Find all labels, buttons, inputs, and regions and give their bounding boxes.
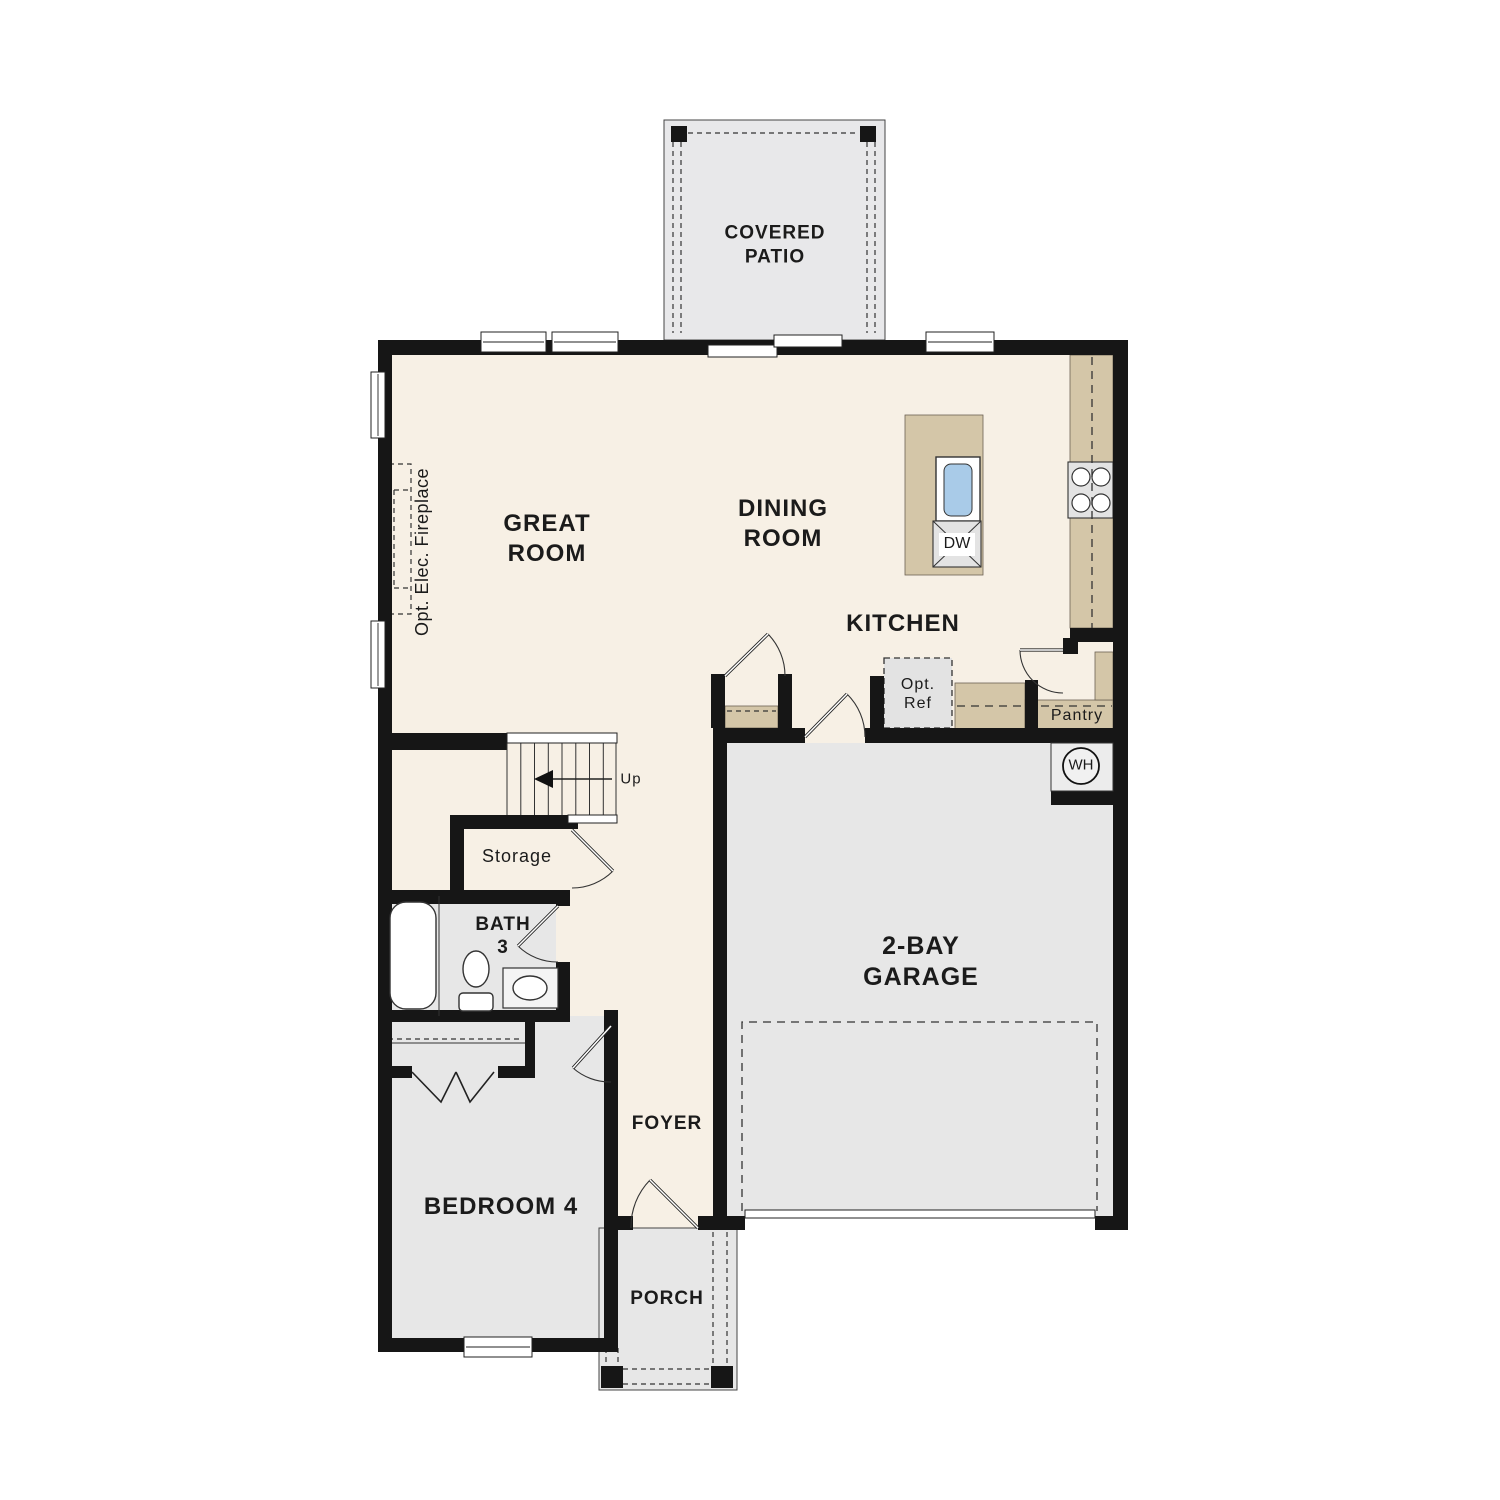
water-heater-label: WH: [1069, 757, 1094, 776]
kitchen-sink: [936, 457, 980, 521]
bedroom4-label: BEDROOM 4: [424, 1192, 578, 1222]
porch-label: PORCH: [630, 1287, 704, 1311]
foyer-label: FOYER: [632, 1112, 702, 1136]
window: [481, 332, 546, 352]
window: [926, 332, 994, 352]
bath-sink: [503, 968, 558, 1008]
dishwasher-label: DW: [944, 534, 971, 554]
pantry-label: Pantry: [1051, 706, 1103, 726]
covered-patio-label: COVERED PATIO: [725, 221, 826, 269]
bath3-label: BATH 3: [475, 914, 530, 960]
patio-post-left: [671, 126, 687, 142]
opt-ref-label: Opt. Ref: [901, 675, 935, 713]
closet-shelf: [725, 706, 778, 728]
storage-label: Storage: [482, 845, 552, 868]
floor-plan: COVERED PATIO GREAT ROOM DINING ROOM KIT…: [0, 0, 1500, 1500]
bedroom4-floor: [392, 1016, 604, 1345]
garage-door-opening: [745, 1210, 1095, 1218]
kitchen-label: KITCHEN: [846, 609, 960, 639]
great-room-label: GREAT ROOM: [503, 509, 590, 569]
opt-fireplace-label: Opt. Elec. Fireplace: [411, 468, 434, 636]
patio-post-right: [860, 126, 876, 142]
window: [371, 372, 385, 438]
window: [552, 332, 618, 352]
window: [371, 621, 385, 688]
stairs-up-label: Up: [620, 771, 641, 790]
pantry-shelf-right: [1095, 652, 1113, 700]
bathtub: [390, 902, 436, 1009]
garage-label: 2-BAY GARAGE: [863, 931, 979, 994]
dining-room-label: DINING ROOM: [738, 494, 828, 554]
stove: [1068, 462, 1113, 518]
window: [464, 1337, 532, 1357]
